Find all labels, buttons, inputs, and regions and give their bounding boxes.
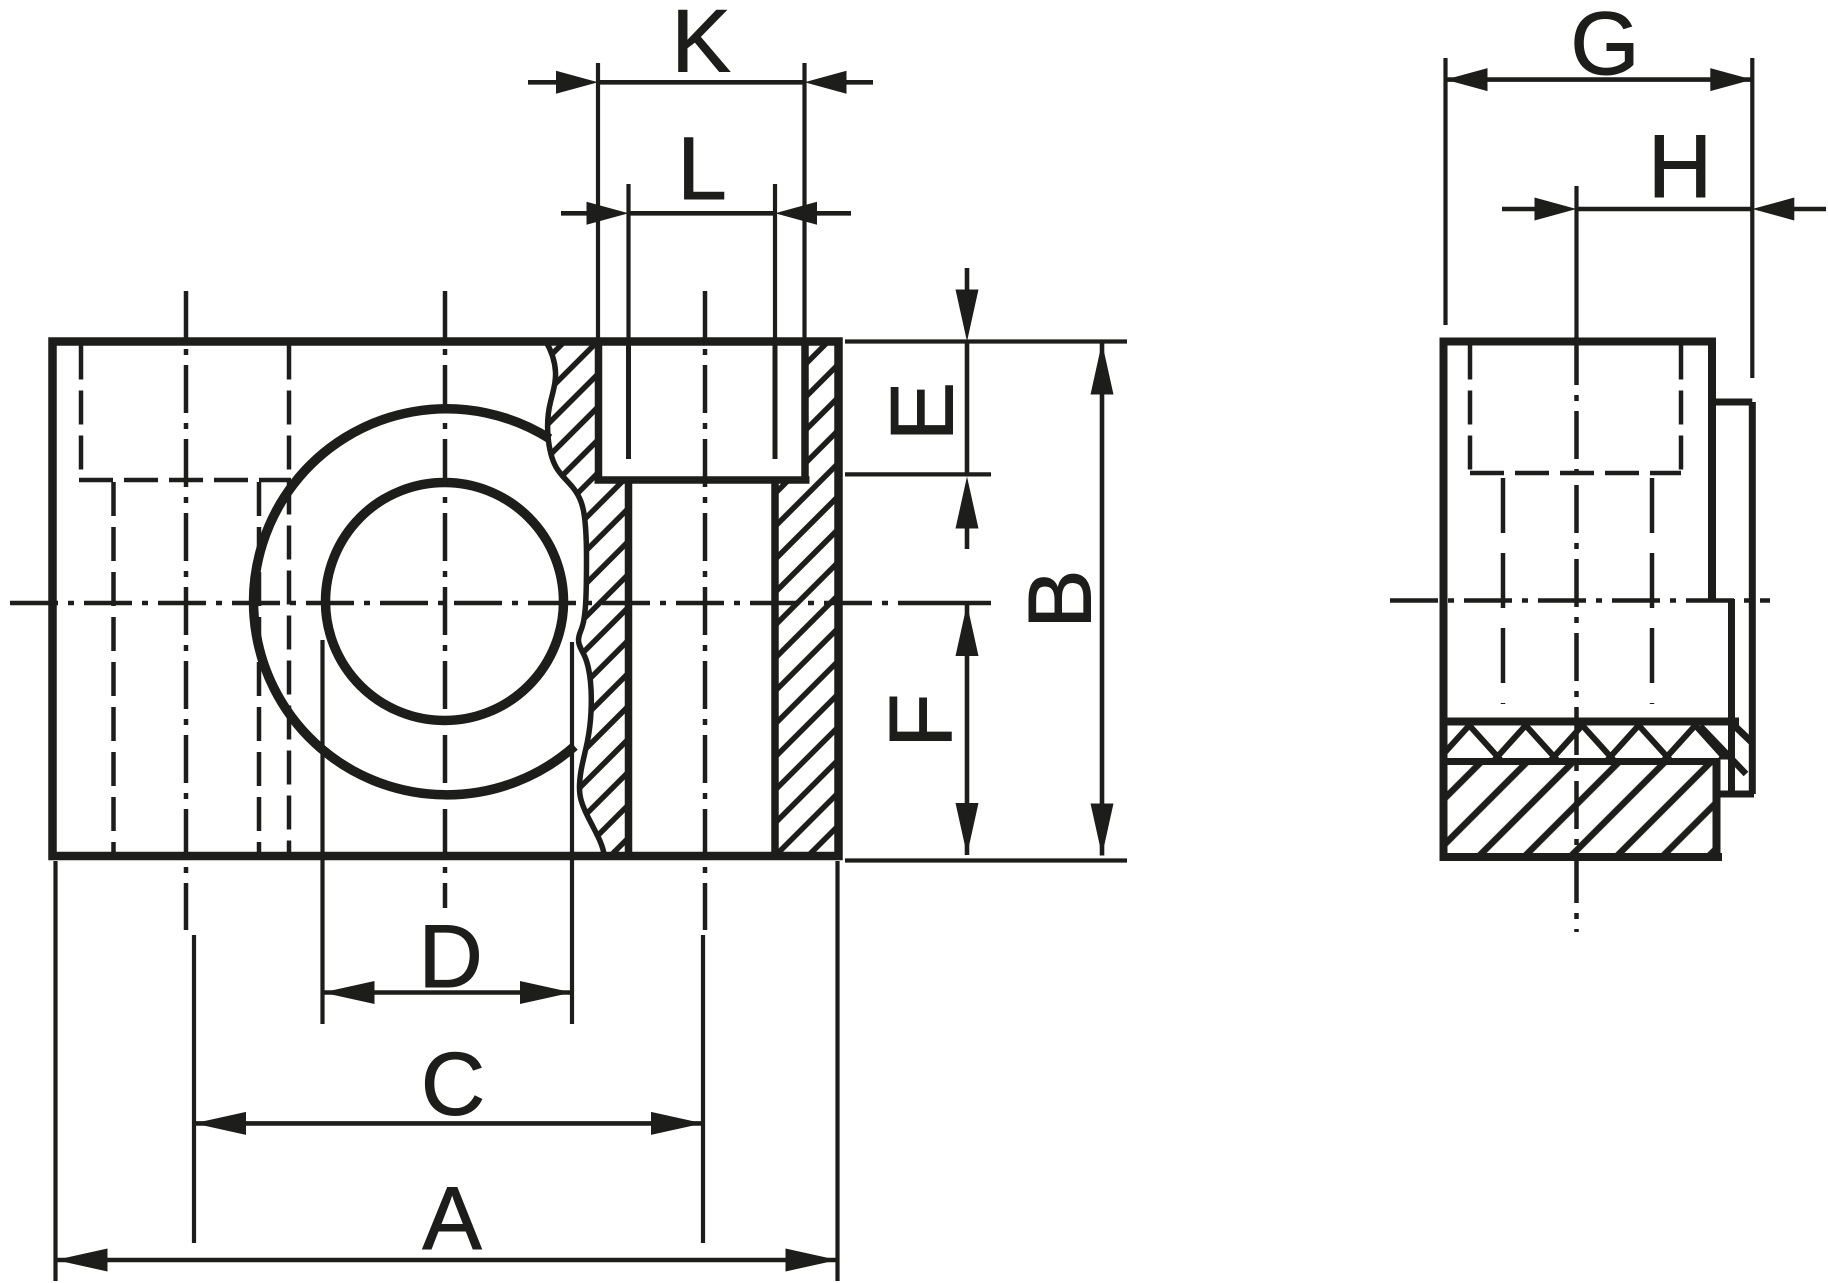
svg-text:L: L xyxy=(677,118,727,218)
svg-text:F: F xyxy=(871,693,971,747)
svg-text:A: A xyxy=(422,1168,482,1268)
svg-text:K: K xyxy=(671,0,730,91)
svg-text:D: D xyxy=(419,906,483,1006)
svg-text:H: H xyxy=(1648,116,1712,216)
svg-text:C: C xyxy=(421,1033,485,1133)
svg-text:E: E xyxy=(872,382,972,441)
svg-text:B: B xyxy=(1010,569,1110,628)
svg-text:G: G xyxy=(1570,0,1639,93)
